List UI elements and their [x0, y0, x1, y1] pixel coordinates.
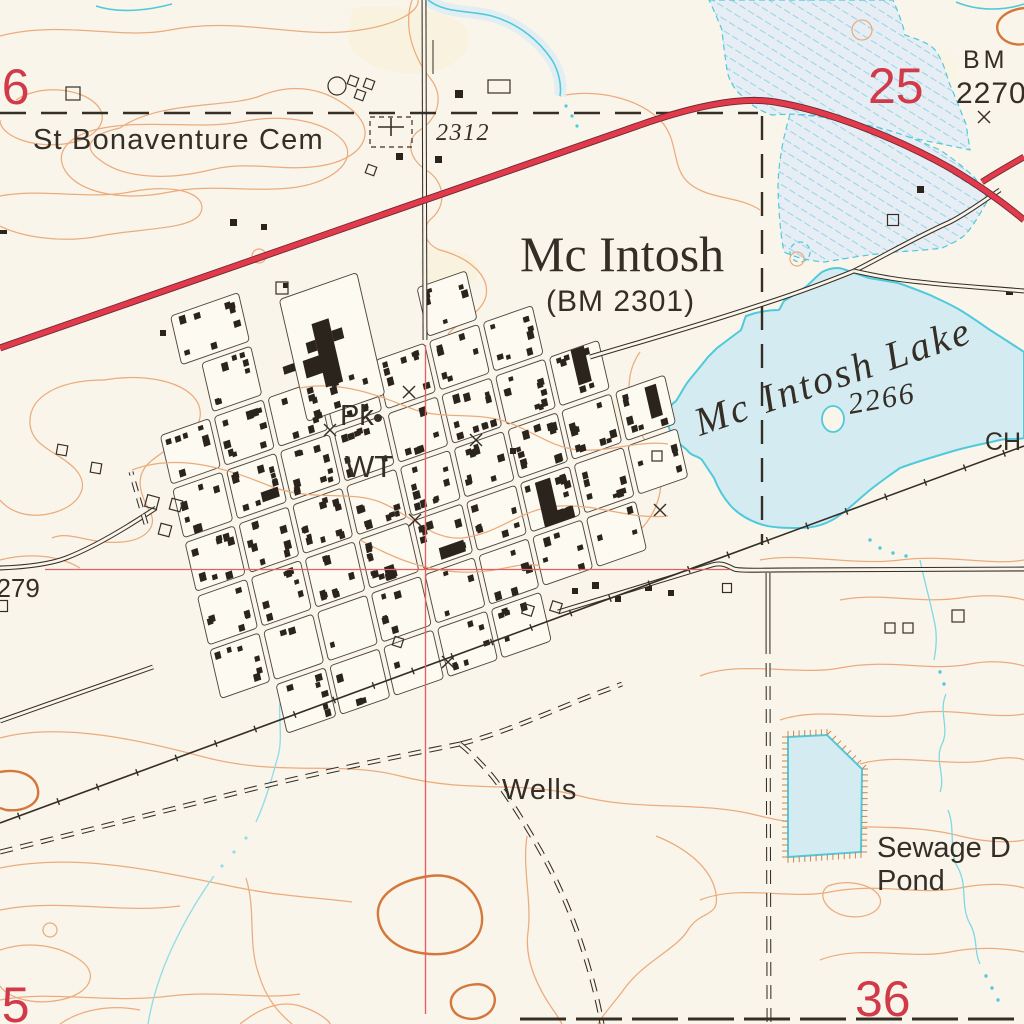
svg-text:CH: CH — [985, 428, 1021, 456]
svg-text:2270: 2270 — [956, 77, 1024, 110]
svg-text:Mc Intosh: Mc Intosh — [520, 226, 724, 282]
svg-text:BM: BM — [963, 46, 1009, 74]
svg-text:Wells: Wells — [502, 774, 577, 806]
svg-text:36: 36 — [855, 971, 911, 1024]
svg-text:(BM 2301): (BM 2301) — [546, 285, 695, 318]
svg-text:Pond: Pond — [877, 865, 945, 897]
svg-text:26: 26 — [0, 59, 30, 115]
svg-text:2312: 2312 — [436, 120, 490, 146]
svg-text:2279: 2279 — [0, 573, 40, 603]
svg-text:25: 25 — [868, 58, 924, 114]
svg-text:Pk: Pk — [340, 400, 374, 432]
svg-text:Sewage D: Sewage D — [877, 832, 1011, 864]
svg-text:St Bonaventure Cem: St Bonaventure Cem — [33, 124, 324, 156]
svg-text:WT: WT — [345, 449, 393, 484]
svg-text:35: 35 — [0, 977, 30, 1024]
